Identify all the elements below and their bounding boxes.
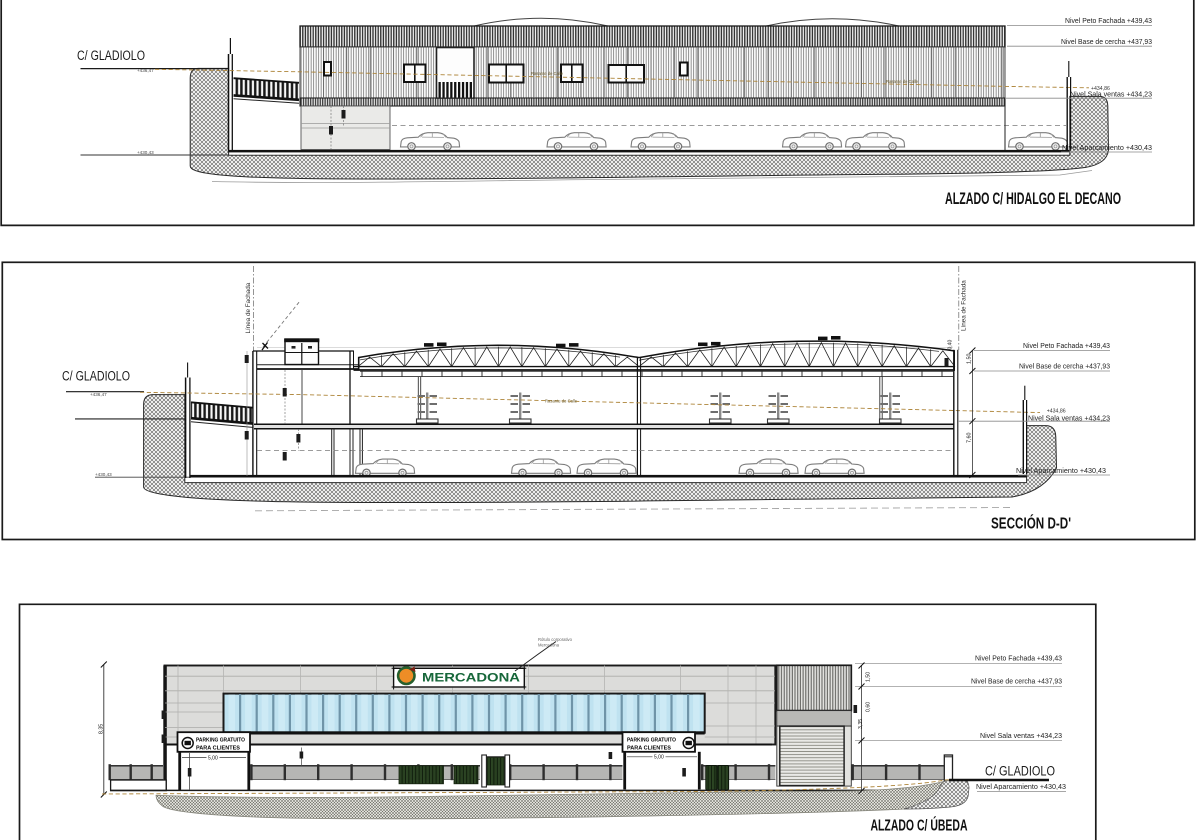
svg-text:Nivel Peto Fachada +439,43: Nivel Peto Fachada +439,43 [1023, 343, 1110, 350]
svg-text:C/ GLADIOLO: C/ GLADIOLO [77, 48, 145, 63]
svg-text:Nivel Base de cercha +437,93: Nivel Base de cercha +437,93 [1019, 363, 1110, 370]
svg-text:+436,47: +436,47 [137, 68, 154, 73]
svg-text:Línea de Fachada: Línea de Fachada [245, 282, 252, 333]
svg-text:+430,43: +430,43 [95, 472, 112, 477]
svg-text:Rasante de Calle: Rasante de Calle [886, 79, 919, 84]
svg-text:Nivel Peto Fachada +439,43: Nivel Peto Fachada +439,43 [975, 656, 1062, 663]
svg-text:PARA CLIENTES: PARA CLIENTES [627, 745, 671, 751]
svg-text:Nivel Aparcamiento +430,43: Nivel Aparcamiento +430,43 [976, 784, 1066, 791]
svg-text:Nivel Sala ventas +434,23: Nivel Sala ventas +434,23 [980, 733, 1062, 740]
svg-text:PARA CLIENTES: PARA CLIENTES [196, 745, 240, 751]
svg-text:0,40: 0,40 [948, 340, 954, 350]
svg-text:Nivel Base de cercha +437,93: Nivel Base de cercha +437,93 [971, 679, 1062, 686]
svg-text:Nivel Sala ventas +434,23: Nivel Sala ventas +434,23 [1070, 91, 1152, 98]
svg-text:SECCIÓN D-D': SECCIÓN D-D' [991, 515, 1071, 533]
svg-text:Nivel Aparcamiento +430,43: Nivel Aparcamiento +430,43 [1016, 468, 1106, 475]
svg-text:Nivel Base de cercha +437,93: Nivel Base de cercha +437,93 [1061, 39, 1152, 46]
svg-text:C/ GLADIOLO: C/ GLADIOLO [985, 764, 1055, 779]
svg-text:Mercadona: Mercadona [538, 643, 560, 648]
svg-text:ALZADO C/ HIDALGO EL DECANO: ALZADO C/ HIDALGO EL DECANO [945, 190, 1121, 208]
svg-text:MERCADONA: MERCADONA [422, 671, 520, 685]
svg-text:PARKING GRATUITO: PARKING GRATUITO [627, 738, 677, 744]
svg-text:0,60: 0,60 [866, 702, 872, 712]
svg-text:3,35: 3,35 [858, 719, 864, 729]
svg-text:5,00: 5,00 [208, 755, 218, 761]
svg-text:+436,47: +436,47 [90, 392, 107, 397]
svg-text:7,60: 7,60 [967, 433, 973, 444]
svg-text:Línea de Fachada: Línea de Fachada [961, 280, 968, 331]
svg-text:8,35: 8,35 [99, 724, 105, 734]
svg-text:1,50: 1,50 [866, 672, 872, 682]
svg-text:Rasante de Calle: Rasante de Calle [531, 71, 564, 76]
svg-text:+434,86: +434,86 [1047, 409, 1066, 415]
svg-text:Nivel Sala ventas +434,23: Nivel Sala ventas +434,23 [1028, 416, 1110, 423]
svg-text:C/ GLADIOLO: C/ GLADIOLO [62, 369, 130, 384]
svg-text:Nivel Peto Fachada +439,43: Nivel Peto Fachada +439,43 [1065, 18, 1152, 25]
svg-text:+430,43: +430,43 [137, 150, 154, 155]
svg-text:5,00: 5,00 [654, 754, 664, 760]
svg-text:Rótulo corporativo: Rótulo corporativo [538, 637, 573, 642]
svg-text:PARKING GRATUITO: PARKING GRATUITO [196, 738, 246, 744]
svg-text:Nivel Aparcamiento +430,43: Nivel Aparcamiento +430,43 [1062, 145, 1152, 152]
svg-text:1,50: 1,50 [967, 354, 973, 365]
svg-text:ALZADO C/ ÚBEDA: ALZADO C/ ÚBEDA [871, 817, 968, 835]
svg-text:Rasante de Calle: Rasante de Calle [545, 399, 578, 404]
